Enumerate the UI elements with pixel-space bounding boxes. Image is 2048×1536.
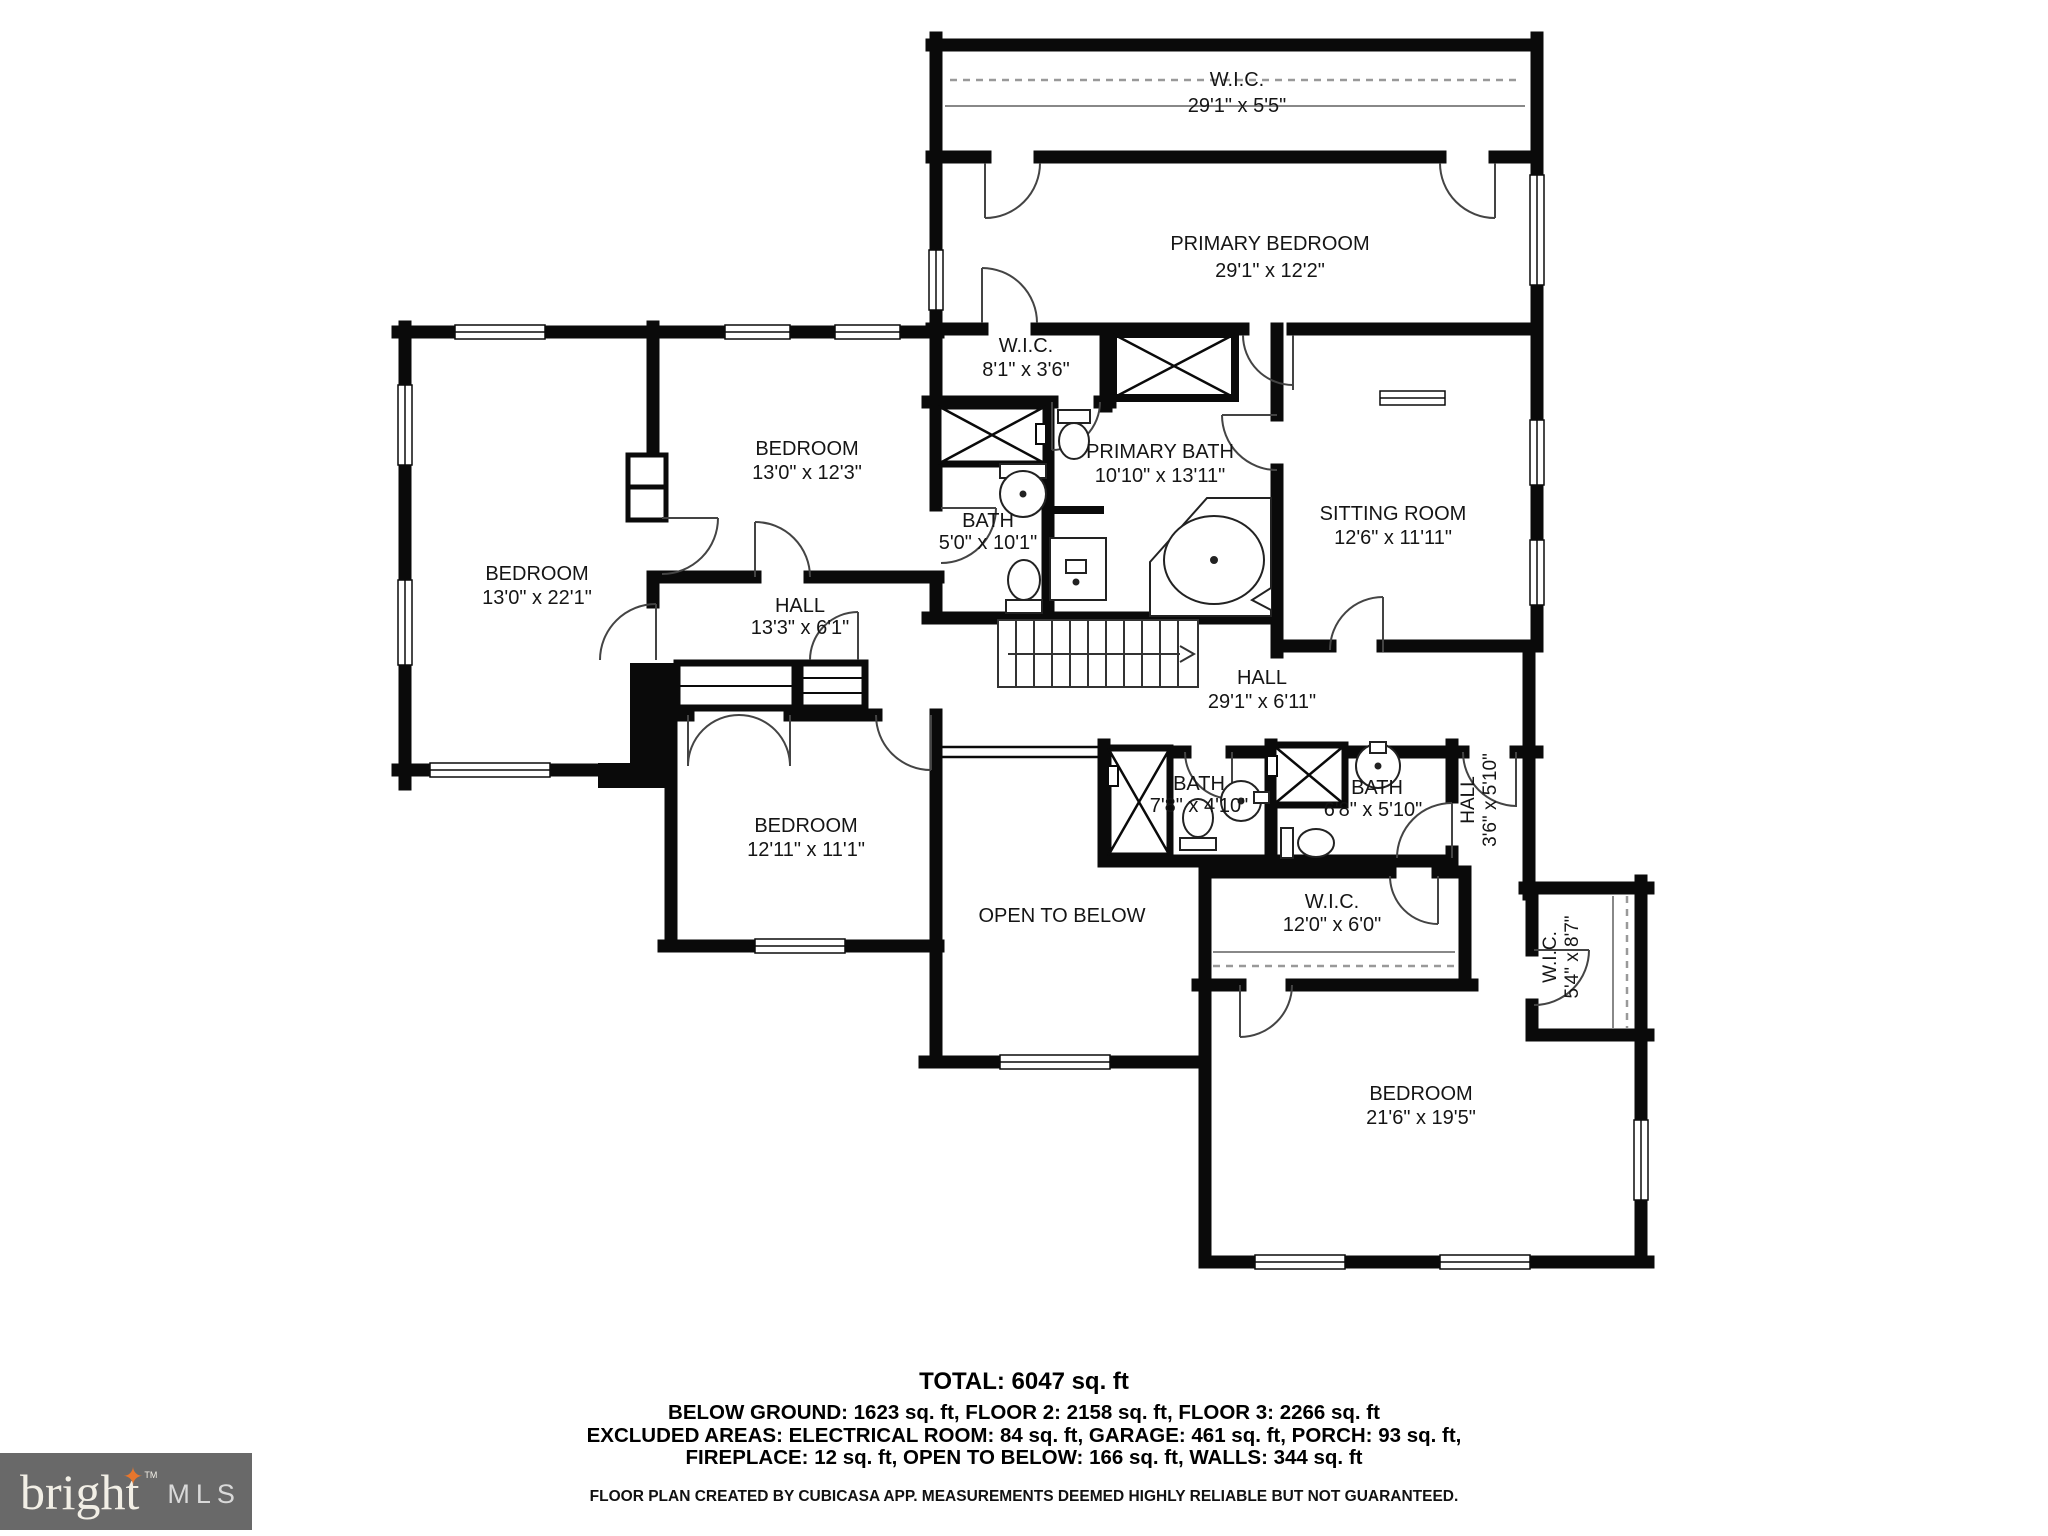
- window: [398, 580, 412, 665]
- room-dims-bedroom-big: 21'6" x 19'5": [1366, 1107, 1476, 1129]
- shower-icon: [1267, 745, 1345, 805]
- window: [1255, 1255, 1345, 1269]
- door-arc: [1440, 163, 1495, 218]
- room-label-bath-1: BATH: [1173, 773, 1225, 795]
- room-dims-bedroom-lower: 12'11" x 11'1": [747, 839, 865, 861]
- shower-stalls: [938, 334, 1345, 856]
- room-dims-bedroom-left: 13'0" x 22'1": [482, 587, 592, 609]
- door-arc: [876, 715, 931, 770]
- room-label-wic-primary: W.I.C.: [999, 335, 1053, 357]
- window: [1440, 1255, 1530, 1269]
- room-dims-hall-left: 13'3" x 6'1": [751, 617, 850, 639]
- room-dims-sitting-room: 12'6" x 11'11": [1334, 527, 1452, 549]
- window: [929, 250, 943, 310]
- room-dims-bath-small: 5'0" x 10'1": [939, 532, 1038, 554]
- window: [1000, 1055, 1110, 1069]
- stairs: [998, 620, 1198, 687]
- window: [1530, 540, 1544, 605]
- room-label-bath-small: BATH: [962, 510, 1014, 532]
- area-summary: TOTAL: 6047 sq. ft BELOW GROUND: 1623 sq…: [0, 1368, 2048, 1470]
- room-label-bedroom-left: BEDROOM: [485, 563, 588, 585]
- door-arc: [985, 163, 1040, 218]
- window: [1634, 1120, 1648, 1200]
- room-dims-wic-top: 29'1" x 5'5": [1188, 95, 1287, 117]
- disclaimer-text: FLOOR PLAN CREATED BY CUBICASA APP. MEAS…: [0, 1488, 2048, 1506]
- shower-icon: [938, 406, 1046, 464]
- trademark-symbol: TM: [144, 1470, 157, 1480]
- door-arc: [1390, 876, 1438, 924]
- room-dims-wic-12: 12'0" x 6'0": [1283, 914, 1382, 936]
- toilet-icon: [1006, 560, 1042, 613]
- room-label-bedroom-big: BEDROOM: [1369, 1083, 1472, 1105]
- mls-wordmark: MLS: [167, 1479, 241, 1510]
- window: [725, 325, 790, 339]
- room-dims-hall-small: 3'6" x 5'10": [1480, 753, 1501, 847]
- room-label-sitting-room: SITTING ROOM: [1320, 503, 1467, 525]
- room-label-hall-small: HALL: [1458, 776, 1479, 824]
- railing: [938, 747, 1104, 757]
- door-arc: [982, 268, 1037, 323]
- door-arc: [662, 518, 718, 574]
- room-dims-bath-1: 7'8" x 4'10": [1150, 795, 1249, 817]
- room-label-primary-bedroom: PRIMARY BEDROOM: [1170, 233, 1369, 255]
- window: [1530, 420, 1544, 485]
- room-label-primary-bath: PRIMARY BATH: [1086, 441, 1234, 463]
- shower-icon: [1113, 334, 1235, 398]
- room-label-bath-2: BATH: [1351, 777, 1403, 799]
- room-label-bedroom-lower: BEDROOM: [754, 815, 857, 837]
- floor-plan-drawing: W.I.C. 29'1" x 5'5" PRIMARY BEDROOM 29'1…: [0, 0, 2048, 1536]
- window: [1530, 175, 1544, 285]
- excluded-areas-line: EXCLUDED AREAS: ELECTRICAL ROOM: 84 sq. …: [0, 1425, 2048, 1448]
- room-dims-bedroom-mid: 13'0" x 12'3": [752, 462, 862, 484]
- door-arc: [1240, 985, 1292, 1037]
- window: [755, 939, 845, 953]
- window: [398, 385, 412, 465]
- door-arc: [688, 715, 739, 766]
- room-dims-bath-2: 6'8" x 5'10": [1324, 799, 1423, 821]
- total-area: TOTAL: 6047 sq. ft: [0, 1368, 2048, 1396]
- window: [430, 763, 550, 777]
- room-label-wic-12: W.I.C.: [1305, 891, 1359, 913]
- sink-icon: [1050, 538, 1106, 600]
- bathtub-icon: [1150, 498, 1271, 616]
- window: [835, 325, 900, 339]
- bright-mls-logo: bright ✦ TM MLS: [0, 1453, 252, 1530]
- door-arc: [1243, 335, 1293, 390]
- room-dims-wic-primary: 8'1" x 3'6": [982, 359, 1069, 381]
- room-label-bedroom-mid: BEDROOM: [755, 438, 858, 460]
- room-dims-primary-bedroom: 29'1" x 12'2": [1215, 260, 1325, 282]
- room-label-hall-main: HALL: [1237, 667, 1287, 689]
- window: [1380, 391, 1445, 405]
- excluded-areas-line-2: FIREPLACE: 12 sq. ft, OPEN TO BELOW: 166…: [0, 1447, 2048, 1470]
- door-arc: [755, 522, 810, 577]
- toilet-icon: [1281, 828, 1334, 858]
- window: [455, 325, 545, 339]
- room-label-wic-top: W.I.C.: [1210, 69, 1264, 91]
- door-arc: [600, 604, 656, 660]
- room-dims-hall-main: 29'1" x 6'11": [1208, 691, 1316, 713]
- room-dims-wic-54: 5'4" x 8'7": [1562, 915, 1583, 998]
- floor-plan-page: W.I.C. 29'1" x 5'5" PRIMARY BEDROOM 29'1…: [0, 0, 2048, 1536]
- room-label-hall-left: HALL: [775, 595, 825, 617]
- door-arc: [1330, 597, 1383, 652]
- star-icon: ✦: [122, 1462, 143, 1492]
- room-label-open-below: OPEN TO BELOW: [978, 905, 1145, 927]
- floor-areas-line: BELOW GROUND: 1623 sq. ft, FLOOR 2: 2158…: [0, 1402, 2048, 1425]
- chimney-ledge: [598, 763, 638, 788]
- room-dims-primary-bath: 10'10" x 13'11": [1095, 465, 1225, 487]
- door-arc: [739, 715, 790, 766]
- room-label-wic-54: W.I.C.: [1540, 931, 1561, 983]
